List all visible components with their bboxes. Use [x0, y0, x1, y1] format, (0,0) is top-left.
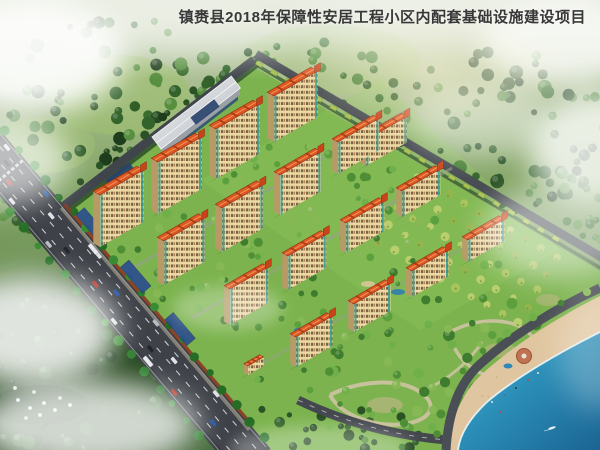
beach-people	[537, 372, 539, 374]
rendering-poster: 镇赉县2018年保障性安居工程小区内配套基础设施建设项目	[0, 0, 600, 450]
beach-people	[527, 379, 529, 381]
beach-people	[504, 394, 506, 396]
aerial-rendering-canvas	[0, 0, 600, 450]
project-title: 镇赉县2018年保障性安居工程小区内配套基础设施建设项目	[179, 6, 586, 27]
beach-people	[515, 387, 517, 389]
beach-people	[491, 401, 493, 403]
beach-people	[499, 411, 501, 413]
